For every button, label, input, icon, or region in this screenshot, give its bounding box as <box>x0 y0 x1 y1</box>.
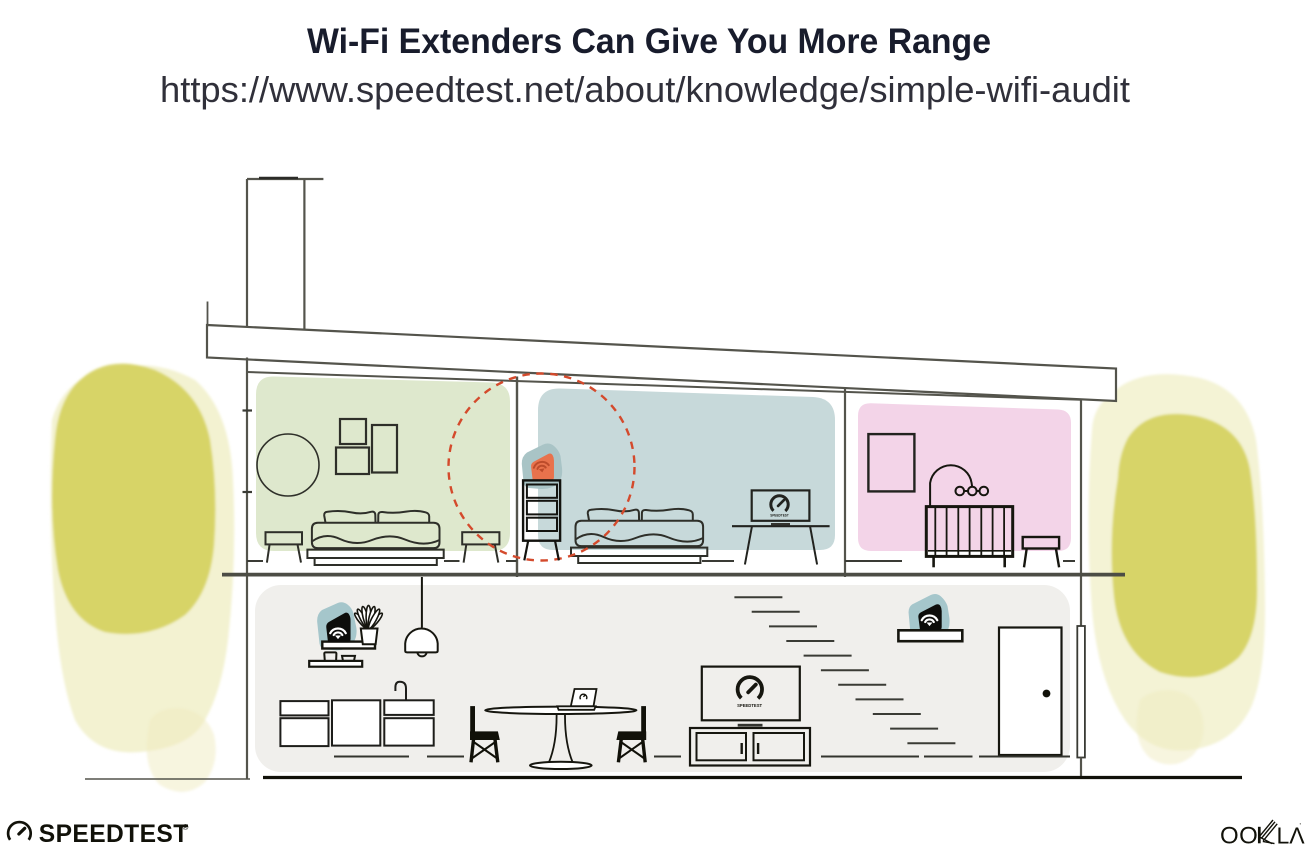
svg-text:https://www.speedtest.net/abou: https://www.speedtest.net/about/knowledg… <box>160 69 1130 110</box>
svg-text:SPEEDTEST: SPEEDTEST <box>737 703 762 708</box>
svg-text:': ' <box>1300 823 1301 830</box>
svg-text:®: ® <box>183 823 189 832</box>
svg-text:Wi-Fi Extenders Can Give You M: Wi-Fi Extenders Can Give You More Range <box>307 22 991 61</box>
svg-text:SPEEDTEST: SPEEDTEST <box>770 513 789 517</box>
svg-text:LΛ: LΛ <box>1277 822 1306 848</box>
svg-text:SPEEDTEST: SPEEDTEST <box>39 821 189 848</box>
svg-text:OO: OO <box>1220 822 1258 849</box>
